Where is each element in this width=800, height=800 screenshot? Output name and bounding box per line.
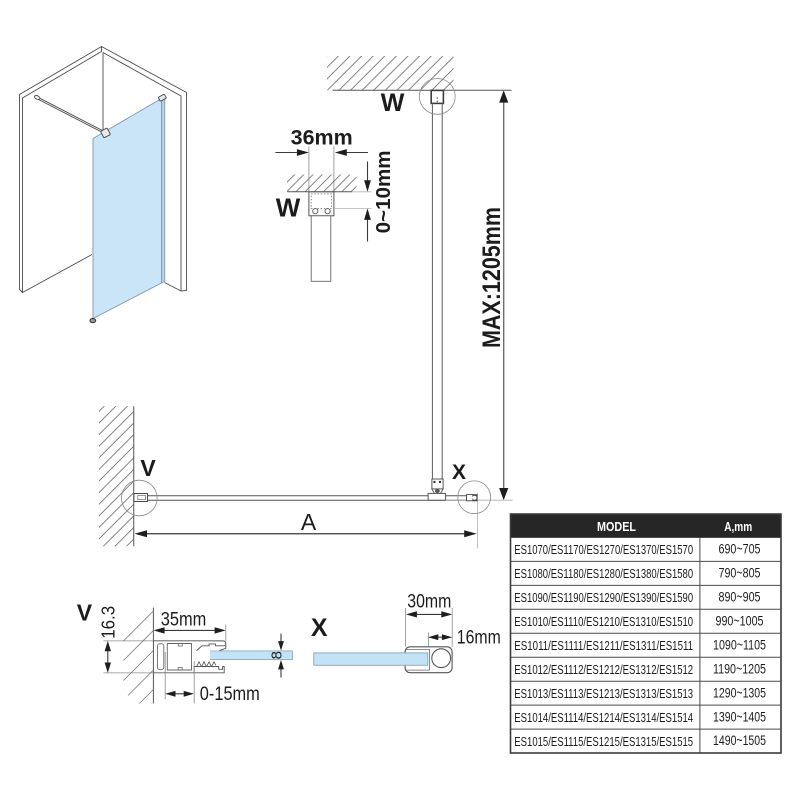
svg-text:ES1012/ES1112/ES1212/ES1312/ES: ES1012/ES1112/ES1212/ES1312/ES1512: [514, 662, 693, 677]
svg-text:ES1011/ES1111/ES1211/ES1311/ES: ES1011/ES1111/ES1211/ES1311/ES1511: [514, 638, 693, 653]
svg-text:690~705: 690~705: [719, 542, 761, 557]
svg-text:16mm: 16mm: [457, 627, 501, 648]
svg-text:35mm: 35mm: [161, 610, 207, 631]
svg-text:W: W: [381, 89, 405, 117]
svg-text:790~805: 790~805: [719, 566, 761, 581]
svg-text:990~1005: 990~1005: [716, 614, 764, 629]
svg-text:X: X: [311, 614, 328, 642]
svg-text:0~10mm: 0~10mm: [372, 150, 395, 233]
svg-text:W: W: [276, 193, 301, 223]
svg-text:1090~1105: 1090~1105: [713, 637, 766, 652]
svg-text:30mm: 30mm: [407, 592, 451, 613]
svg-text:V: V: [140, 455, 156, 481]
svg-text:8: 8: [268, 651, 285, 659]
svg-text:X: X: [452, 461, 466, 484]
svg-text:ES1013/ES1113/ES1213/ES1313/ES: ES1013/ES1113/ES1213/ES1313/ES1513: [514, 686, 693, 701]
svg-text:ES1090/ES1190/ES1290/ES1390/ES: ES1090/ES1190/ES1290/ES1390/ES1590: [514, 590, 693, 605]
svg-text:0-15mm: 0-15mm: [200, 684, 260, 705]
svg-text:ES1070/ES1170/ES1270/ES1370/ES: ES1070/ES1170/ES1270/ES1370/ES1570: [514, 542, 693, 557]
svg-text:36mm: 36mm: [291, 127, 353, 150]
svg-text:MODEL: MODEL: [597, 519, 636, 534]
svg-text:A,mm: A,mm: [724, 519, 752, 534]
svg-text:ES1014/ES1114/ES1214/ES1314/ES: ES1014/ES1114/ES1214/ES1314/ES1514: [514, 710, 693, 725]
svg-text:1490~1505: 1490~1505: [713, 733, 766, 748]
svg-text:1190~1205: 1190~1205: [713, 661, 766, 676]
svg-text:890~905: 890~905: [719, 590, 761, 605]
svg-text:1290~1305: 1290~1305: [713, 685, 766, 700]
svg-text:MAX:1205mm: MAX:1205mm: [478, 207, 506, 348]
svg-text:ES1015/ES1115/ES1215/ES1315/ES: ES1015/ES1115/ES1215/ES1315/ES1515: [514, 734, 693, 749]
svg-text:A: A: [301, 509, 317, 535]
svg-text:1390~1405: 1390~1405: [713, 709, 766, 724]
svg-text:ES1080/ES1180/ES1280/ES1380/ES: ES1080/ES1180/ES1280/ES1380/ES1580: [514, 566, 693, 581]
svg-text:ES1010/ES1110/ES1210/ES1310/ES: ES1010/ES1110/ES1210/ES1310/ES1510: [514, 614, 693, 629]
svg-text:16.3: 16.3: [99, 606, 119, 639]
svg-text:V: V: [77, 600, 93, 626]
